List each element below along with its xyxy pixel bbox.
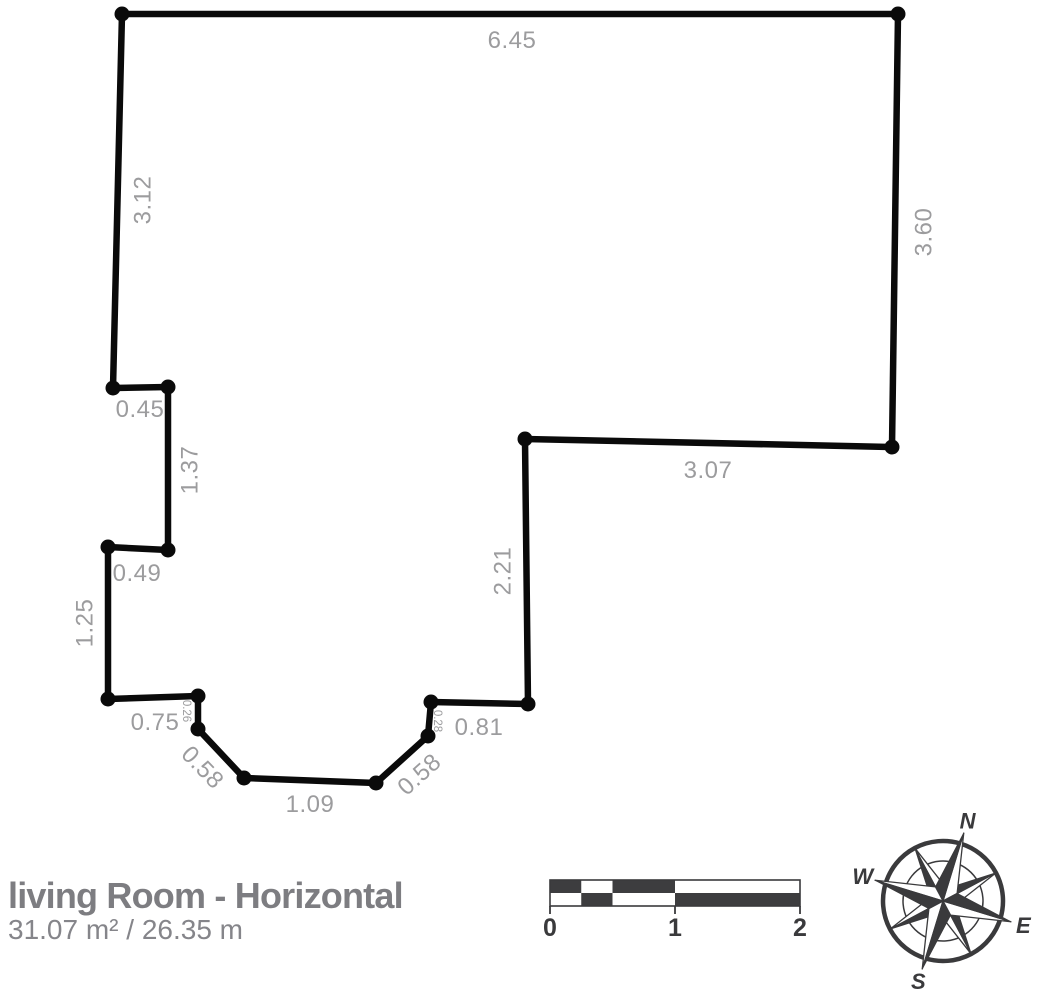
dim-label-right: 3.60 [910,208,937,257]
compass-letter-n: N [960,808,977,833]
vertex-dot [891,7,906,22]
vertex-dot [101,692,116,707]
compass-letter-e: E [1016,913,1032,938]
dim-label-bottom-right: 0.81 [455,714,504,741]
scale-label-1: 1 [668,914,682,942]
dim-label-notch-right: 0.28 [431,710,443,732]
dim-label-left-lower: 1.25 [71,599,98,648]
dim-label-step-lower: 0.49 [113,560,162,587]
vertex-dot [161,543,176,558]
vertex-dot [369,776,384,791]
dim-label-upper-inner: 3.07 [684,457,733,484]
compass-letter-w: W [852,864,875,889]
dim-label-step-upper: 0.45 [116,396,165,423]
room-outline [108,14,898,783]
vertex-dot [885,440,900,455]
dim-label-top: 6.45 [488,27,537,54]
vertex-dot [106,381,121,396]
dim-label-left-middle: 1.37 [176,446,203,495]
dim-label-inner-vertical: 2.21 [489,547,516,596]
compass-rose: N E S W [835,790,1037,1000]
vertex-dot [161,380,176,395]
vertex-dot [115,7,130,22]
vertex-dot [424,695,439,710]
vertex-dots [101,7,906,791]
compass-letter-s: S [911,969,926,994]
scale-bar: 0 1 2 [540,870,820,950]
room-metrics: 31.07 m² / 26.35 m [8,914,243,946]
vertex-dot [521,697,536,712]
compass-star [854,812,1031,989]
vertex-dot [191,722,206,737]
floorplan-canvas: 6.45 3.60 3.07 2.21 0.81 0.28 0.58 1.09 … [0,0,1037,860]
scale-segment [613,880,676,893]
scale-segment [675,893,800,906]
vertex-dot [518,432,533,447]
dim-label-diagonal-right: 0.58 [392,748,446,801]
scale-label-2: 2 [793,914,807,942]
room-title: living Room - Horizontal [8,876,403,916]
dim-label-left-upper: 3.12 [129,176,156,225]
dim-label-bottom: 1.09 [286,791,335,818]
vertex-dot [237,771,252,786]
scale-segment [581,893,612,906]
dim-label-bottom-left: 0.75 [131,709,180,736]
vertex-dot [101,540,116,555]
floorplan-page: 6.45 3.60 3.07 2.21 0.81 0.28 0.58 1.09 … [0,0,1037,1000]
dim-label-notch-left: 0.26 [180,700,192,722]
scale-label-0: 0 [543,914,557,942]
scale-segment [550,880,581,893]
